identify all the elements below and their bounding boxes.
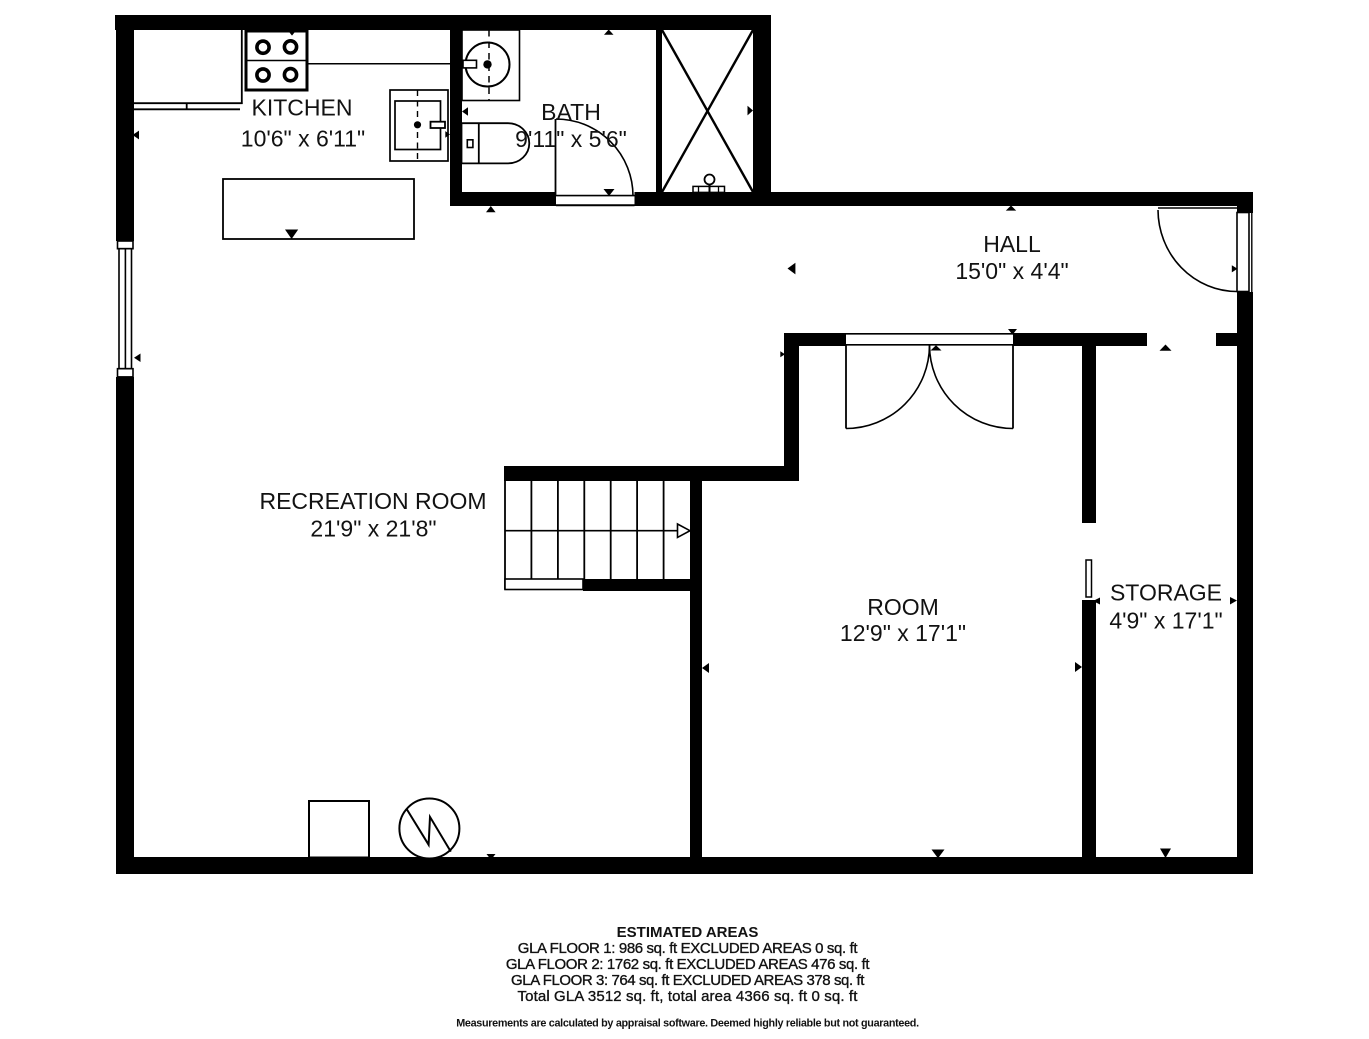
svg-text:Measurements are calculated by: Measurements are calculated by appraisal… xyxy=(456,1018,919,1030)
svg-text:GLA FLOOR 3: 764 sq. ft EXCLUD: GLA FLOOR 3: 764 sq. ft EXCLUDED AREAS 3… xyxy=(511,972,865,989)
svg-text:KITCHEN: KITCHEN xyxy=(252,95,353,121)
svg-text:GLA FLOOR 2: 1762 sq. ft EXCLU: GLA FLOOR 2: 1762 sq. ft EXCLUDED AREAS … xyxy=(506,956,871,973)
svg-text:Total GLA 3512 sq. ft, total a: Total GLA 3512 sq. ft, total area 4366 s… xyxy=(517,988,858,1005)
svg-text:4'9" x 17'1": 4'9" x 17'1" xyxy=(1109,608,1222,634)
svg-text:GLA FLOOR 1: 986 sq. ft EXCLUD: GLA FLOOR 1: 986 sq. ft EXCLUDED AREAS 0… xyxy=(518,940,859,957)
svg-text:12'9" x 17'1": 12'9" x 17'1" xyxy=(840,620,966,646)
svg-text:ESTIMATED AREAS: ESTIMATED AREAS xyxy=(617,924,759,941)
svg-text:STORAGE: STORAGE xyxy=(1110,580,1222,606)
svg-text:15'0" x 4'4": 15'0" x 4'4" xyxy=(955,258,1068,284)
svg-text:RECREATION ROOM: RECREATION ROOM xyxy=(259,488,486,514)
svg-text:BATH: BATH xyxy=(541,99,601,125)
svg-text:9'11" x 5'6": 9'11" x 5'6" xyxy=(515,126,627,152)
svg-text:ROOM: ROOM xyxy=(867,594,939,620)
svg-text:10'6" x 6'11": 10'6" x 6'11" xyxy=(241,126,365,152)
svg-text:HALL: HALL xyxy=(983,231,1041,257)
svg-text:21'9" x 21'8": 21'9" x 21'8" xyxy=(310,516,436,542)
